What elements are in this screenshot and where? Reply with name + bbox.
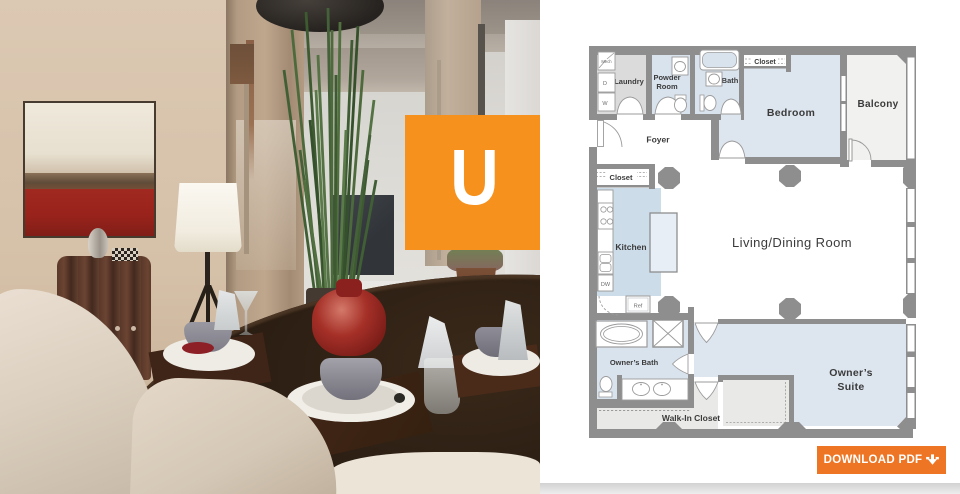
svg-text:Kitchen: Kitchen bbox=[615, 242, 646, 252]
svg-text:Closet: Closet bbox=[754, 59, 776, 66]
svg-text:Walk-In Closet: Walk-In Closet bbox=[662, 413, 720, 423]
svg-text:Foyer: Foyer bbox=[646, 135, 670, 145]
svg-text:Balcony: Balcony bbox=[857, 99, 898, 110]
svg-text:Bedroom: Bedroom bbox=[767, 107, 815, 119]
svg-text:Laundry: Laundry bbox=[614, 77, 644, 86]
svg-text:Owner’s Bath: Owner’s Bath bbox=[610, 358, 659, 367]
svg-text:Owner’s: Owner’s bbox=[829, 367, 873, 379]
svg-text:D: D bbox=[603, 81, 607, 87]
svg-text:DW: DW bbox=[601, 282, 611, 288]
svg-text:Living/Dining Room: Living/Dining Room bbox=[732, 235, 852, 250]
svg-text:Mech: Mech bbox=[601, 59, 612, 64]
svg-text:Room: Room bbox=[656, 82, 678, 91]
svg-text:Ref: Ref bbox=[634, 304, 643, 310]
svg-text:Bath: Bath bbox=[722, 76, 739, 85]
svg-text:Closet: Closet bbox=[610, 173, 633, 182]
svg-text:W: W bbox=[602, 101, 608, 107]
svg-text:Suite: Suite bbox=[837, 381, 864, 393]
